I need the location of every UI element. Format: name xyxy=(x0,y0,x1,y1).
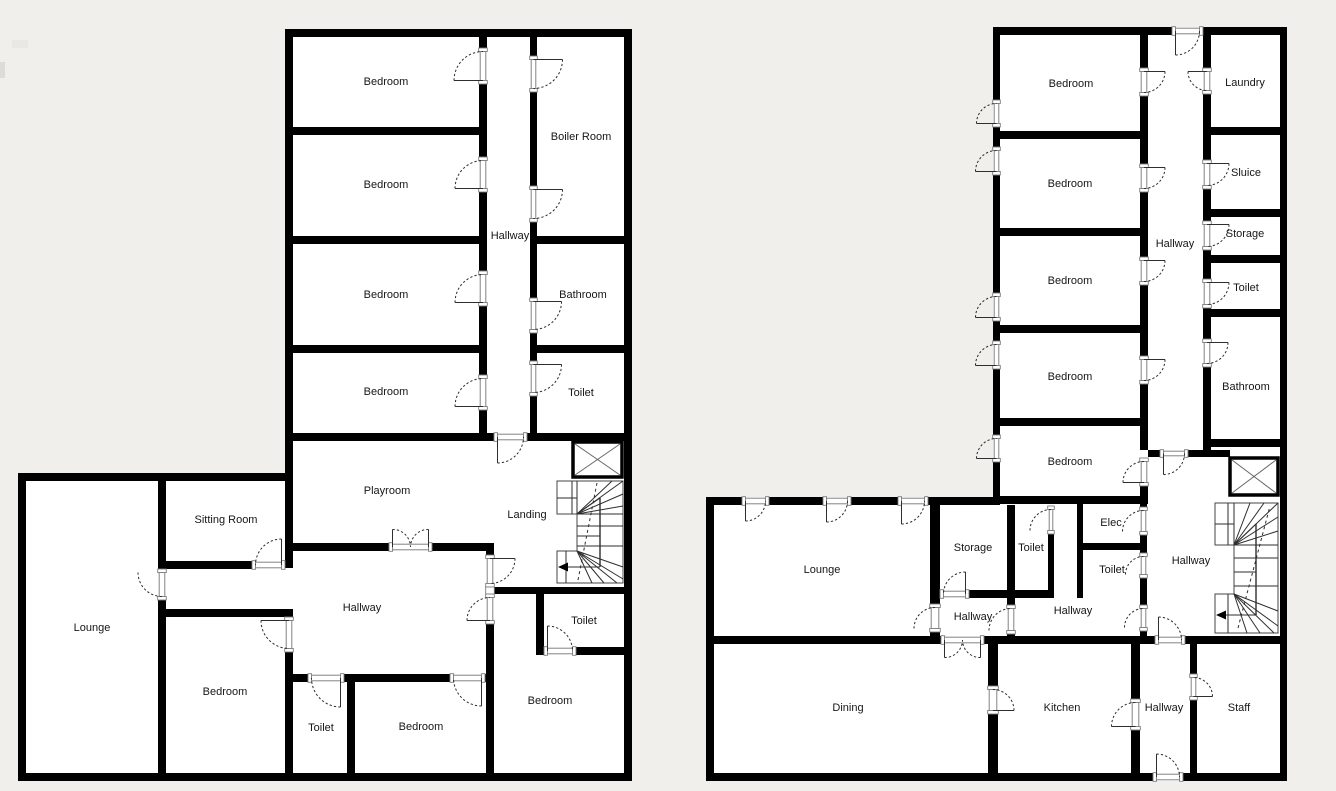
svg-text:Bedroom: Bedroom xyxy=(399,721,444,733)
svg-text:Hallway: Hallway xyxy=(1054,605,1093,617)
svg-text:Landing: Landing xyxy=(507,509,546,521)
svg-text:Bedroom: Bedroom xyxy=(528,695,573,707)
svg-text:Bedroom: Bedroom xyxy=(203,686,248,698)
svg-text:Bedroom: Bedroom xyxy=(1048,371,1093,383)
svg-text:Storage: Storage xyxy=(1226,228,1265,240)
svg-text:Toilet: Toilet xyxy=(308,722,334,734)
svg-text:Bedroom: Bedroom xyxy=(1048,178,1093,190)
svg-text:Bathroom: Bathroom xyxy=(1222,381,1270,393)
svg-text:Hallway: Hallway xyxy=(343,602,382,614)
svg-text:Dining: Dining xyxy=(832,702,863,714)
svg-text:Hallway: Hallway xyxy=(1156,238,1195,250)
svg-text:Boiler Room: Boiler Room xyxy=(551,131,612,143)
svg-text:Hallway: Hallway xyxy=(1172,555,1211,567)
svg-text:Bedroom: Bedroom xyxy=(1048,456,1093,468)
svg-text:Hallway: Hallway xyxy=(491,230,530,242)
svg-text:Staff: Staff xyxy=(1228,702,1251,714)
svg-text:Bedroom: Bedroom xyxy=(1048,275,1093,287)
svg-text:Playroom: Playroom xyxy=(364,485,410,497)
svg-text:Sitting Room: Sitting Room xyxy=(195,514,258,526)
svg-text:Bedroom: Bedroom xyxy=(364,386,409,398)
svg-text:Bedroom: Bedroom xyxy=(364,289,409,301)
svg-text:Toilet: Toilet xyxy=(1099,564,1125,576)
svg-text:Toilet: Toilet xyxy=(1018,542,1044,554)
svg-text:Toilet: Toilet xyxy=(571,615,597,627)
svg-text:Bathroom: Bathroom xyxy=(559,289,607,301)
svg-text:Lounge: Lounge xyxy=(804,564,841,576)
svg-text:Laundry: Laundry xyxy=(1225,77,1265,89)
svg-text:Kitchen: Kitchen xyxy=(1044,702,1081,714)
svg-text:Toilet: Toilet xyxy=(568,387,594,399)
svg-text:Hallway: Hallway xyxy=(1145,702,1184,714)
svg-text:Toilet: Toilet xyxy=(1233,282,1259,294)
svg-text:Bedroom: Bedroom xyxy=(364,179,409,191)
svg-text:Sluice: Sluice xyxy=(1231,167,1261,179)
svg-text:Bedroom: Bedroom xyxy=(1049,78,1094,90)
svg-text:Lounge: Lounge xyxy=(74,622,111,634)
svg-text:Storage: Storage xyxy=(954,542,993,554)
svg-text:Bedroom: Bedroom xyxy=(364,76,409,88)
svg-text:Hallway: Hallway xyxy=(954,611,993,623)
svg-text:Elec: Elec xyxy=(1100,517,1122,529)
